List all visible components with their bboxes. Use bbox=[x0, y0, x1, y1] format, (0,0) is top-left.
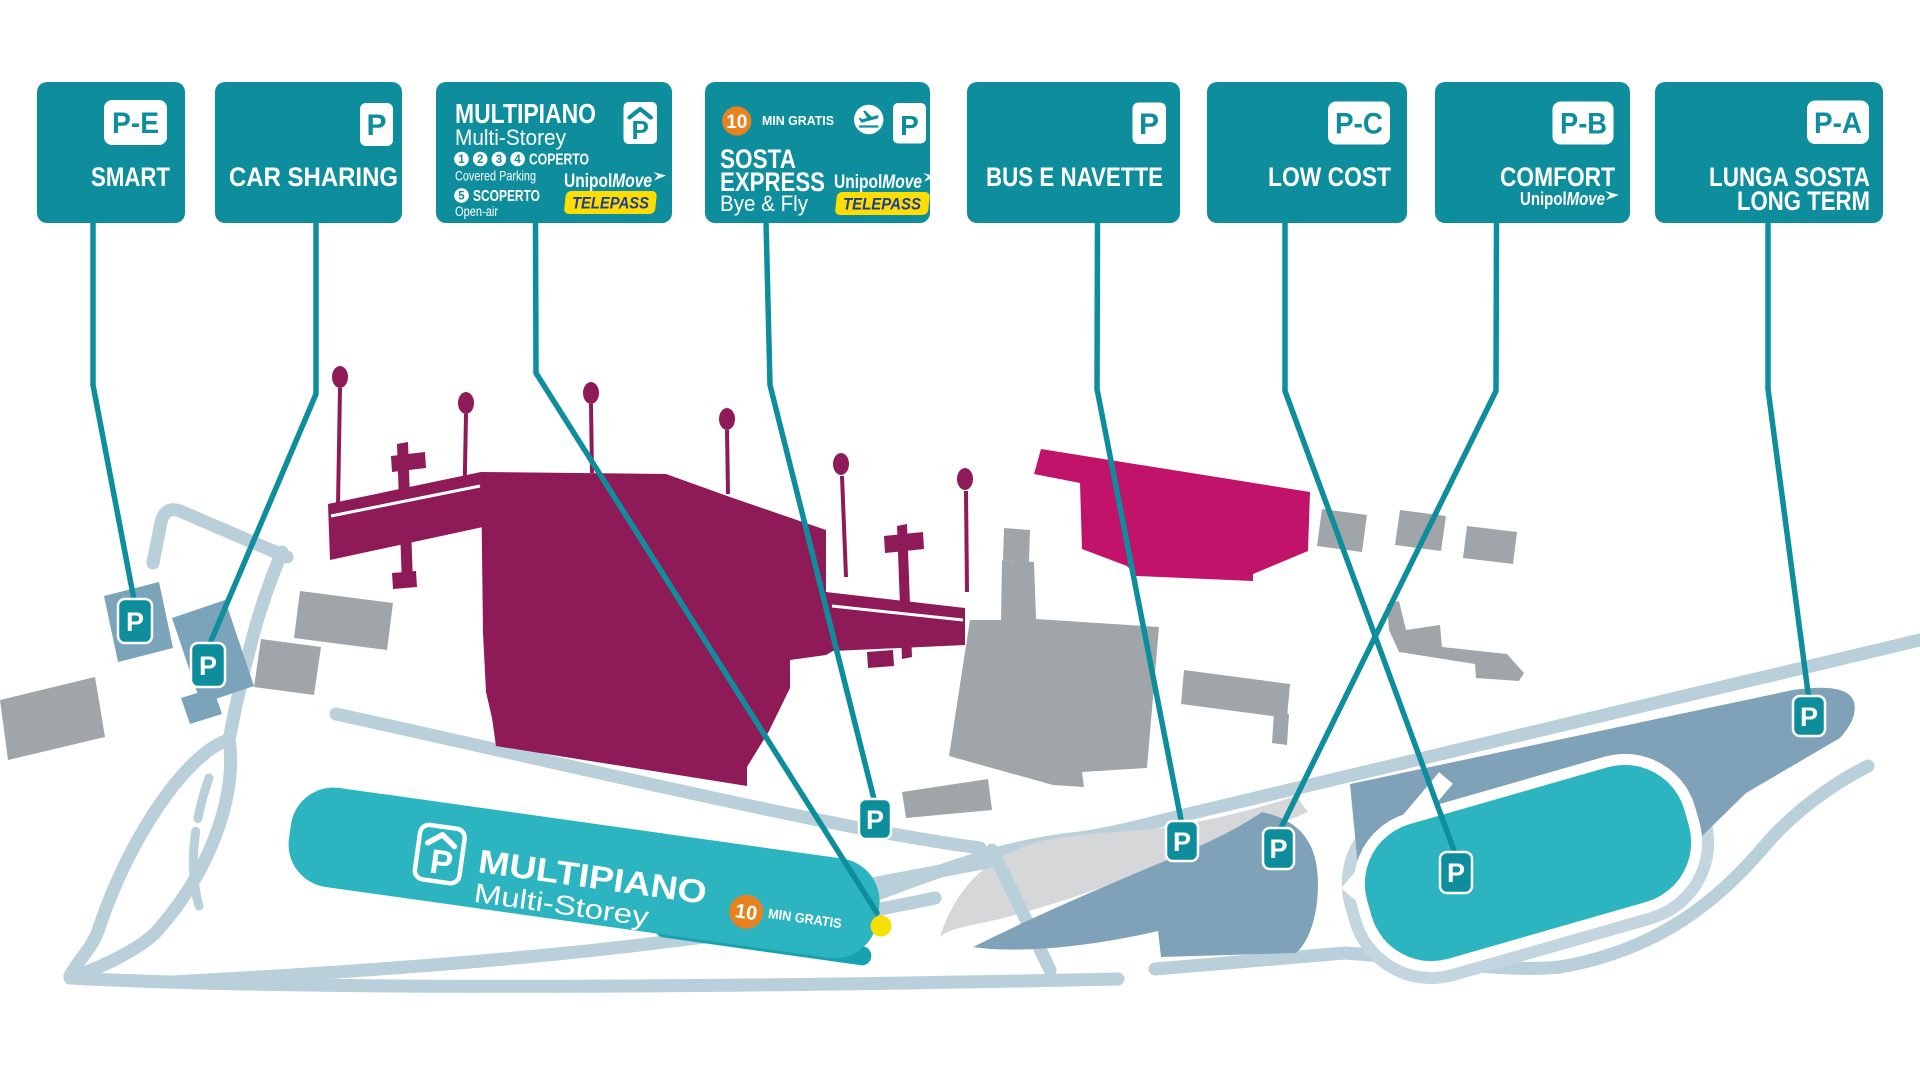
svg-text:P: P bbox=[126, 607, 144, 637]
svg-text:P: P bbox=[1173, 827, 1191, 857]
svg-text:CAR SHARING: CAR SHARING bbox=[229, 162, 398, 192]
svg-text:10: 10 bbox=[734, 900, 759, 925]
svg-text:UnipolMove: UnipolMove bbox=[564, 171, 652, 192]
svg-text:UnipolMove: UnipolMove bbox=[1520, 189, 1605, 209]
svg-text:P: P bbox=[1800, 702, 1818, 732]
svg-text:2: 2 bbox=[477, 154, 483, 166]
svg-text:LOW COST: LOW COST bbox=[1268, 162, 1391, 192]
svg-text:P: P bbox=[199, 651, 217, 681]
svg-text:P-E: P-E bbox=[112, 107, 159, 140]
svg-text:10: 10 bbox=[726, 112, 747, 133]
svg-text:P: P bbox=[1139, 108, 1159, 141]
svg-text:TELEPASS: TELEPASS bbox=[572, 195, 649, 213]
svg-text:SCOPERTO: SCOPERTO bbox=[473, 188, 540, 205]
svg-text:UnipolMove: UnipolMove bbox=[834, 172, 922, 193]
svg-text:P: P bbox=[1269, 834, 1287, 864]
svg-text:SMART: SMART bbox=[91, 162, 170, 192]
svg-text:P: P bbox=[1447, 858, 1465, 888]
svg-text:3: 3 bbox=[496, 154, 502, 166]
svg-text:LONG TERM: LONG TERM bbox=[1737, 186, 1870, 216]
svg-text:P: P bbox=[900, 110, 919, 141]
svg-text:P-A: P-A bbox=[1814, 107, 1862, 140]
svg-text:TELEPASS: TELEPASS bbox=[843, 196, 921, 214]
svg-text:P: P bbox=[366, 109, 386, 142]
svg-text:P: P bbox=[866, 805, 884, 835]
svg-text:P-B: P-B bbox=[1560, 108, 1607, 141]
svg-text:MIN GRATIS: MIN GRATIS bbox=[762, 114, 834, 128]
svg-text:COPERTO: COPERTO bbox=[529, 152, 589, 169]
svg-text:P-C: P-C bbox=[1335, 108, 1383, 141]
svg-text:1: 1 bbox=[458, 154, 465, 166]
svg-text:Bye & Fly: Bye & Fly bbox=[720, 191, 808, 216]
svg-text:Open-air: Open-air bbox=[455, 204, 498, 219]
svg-text:4: 4 bbox=[514, 154, 521, 166]
svg-text:Multi-Storey: Multi-Storey bbox=[455, 125, 566, 150]
svg-text:COMFORT: COMFORT bbox=[1500, 162, 1615, 192]
svg-text:Covered Parking: Covered Parking bbox=[455, 169, 536, 184]
svg-text:P: P bbox=[632, 115, 649, 145]
svg-text:5: 5 bbox=[458, 191, 465, 203]
svg-text:BUS E NAVETTE: BUS E NAVETTE bbox=[986, 162, 1163, 192]
